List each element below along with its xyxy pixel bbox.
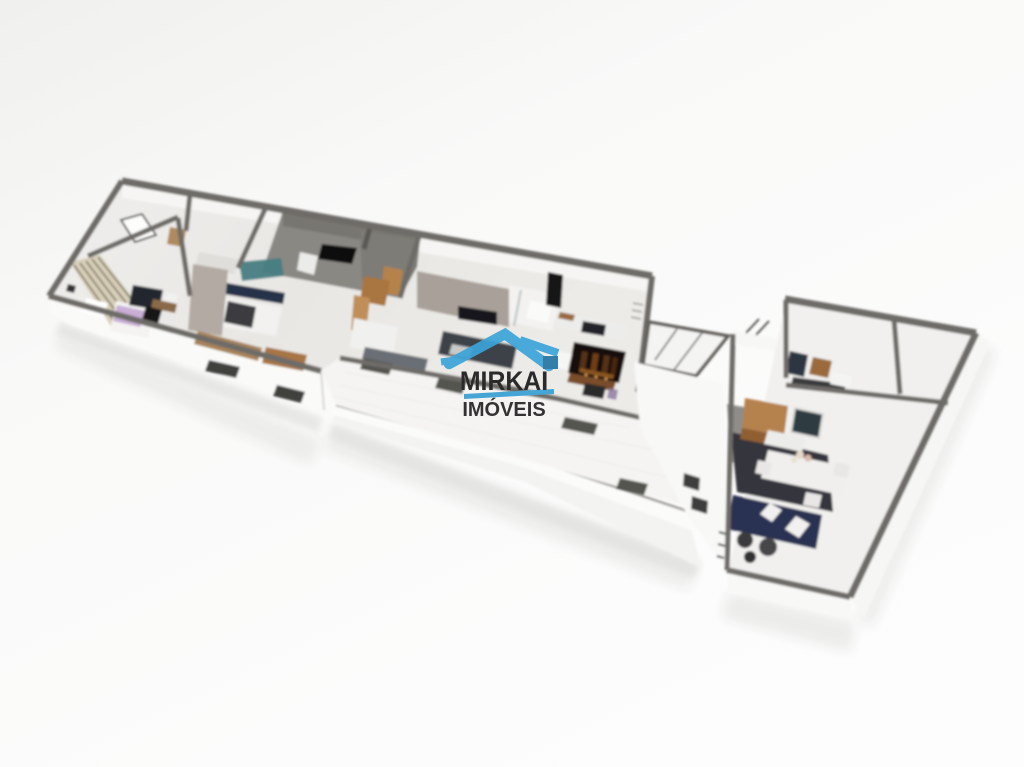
svg-text:MIRKAI: MIRKAI xyxy=(460,367,548,396)
svg-text:IMÓVEIS: IMÓVEIS xyxy=(462,397,545,421)
